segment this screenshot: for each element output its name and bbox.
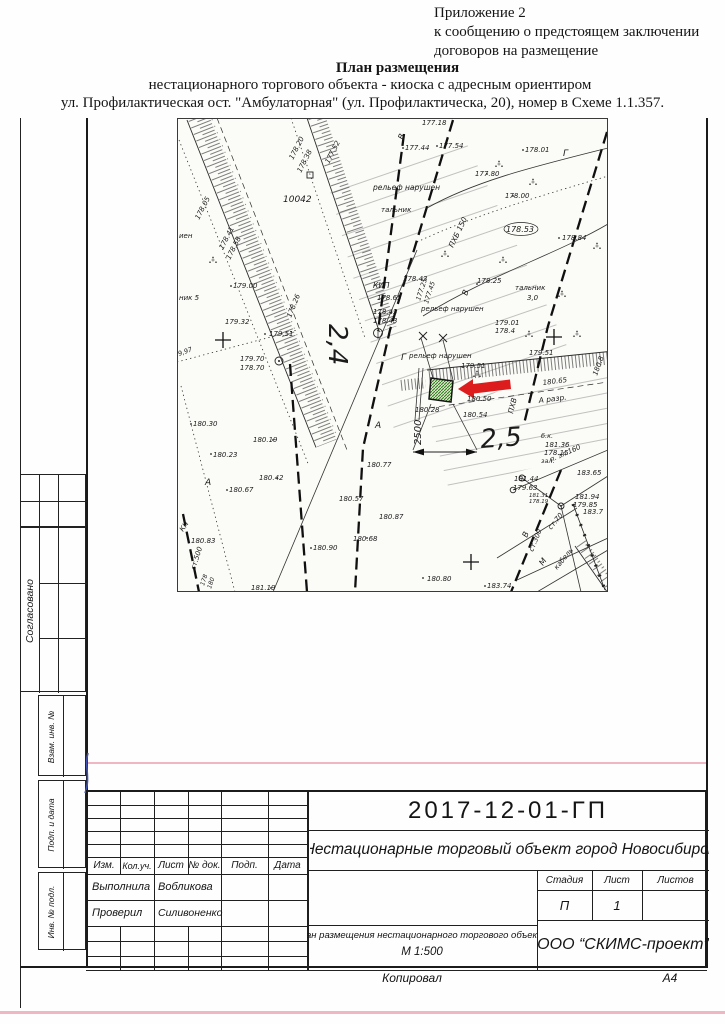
svg-text:180.90: 180.90 [313, 544, 338, 552]
svg-text:иен: иен [179, 232, 193, 240]
svg-text:178.65: 178.65 [377, 294, 402, 302]
svg-text:178.84: 178.84 [562, 234, 587, 242]
svg-text:2,4: 2,4 [322, 324, 352, 365]
svg-text:183.74: 183.74 [487, 582, 512, 590]
svg-text:178.43: 178.43 [373, 308, 398, 316]
svg-text:178.70: 178.70 [240, 364, 265, 372]
svg-text:180.23: 180.23 [213, 451, 238, 459]
svg-text:179.63: 179.63 [513, 484, 538, 492]
stamp-name-1: Вобликова [154, 874, 225, 900]
svg-text:180.67: 180.67 [229, 486, 254, 494]
svg-text:2,5: 2,5 [479, 422, 522, 455]
svg-text:180.83: 180.83 [191, 537, 216, 545]
svg-text:10042: 10042 [283, 195, 312, 205]
svg-text:177.18: 177.18 [422, 119, 447, 127]
svg-text:179.51: 179.51 [269, 330, 294, 338]
svg-text:ст.70: ст.70 [546, 511, 565, 531]
stamp-col-koluch: Кол.уч. [120, 857, 154, 874]
svg-text:181.44: 181.44 [514, 475, 539, 483]
svg-text:178.19: 178.19 [529, 499, 549, 505]
site-plan-drawing: 178.05178.41178.58178.20178.38177.521004… [177, 118, 608, 592]
svg-text:178.26: 178.26 [285, 293, 302, 319]
svg-text:177.80: 177.80 [475, 170, 500, 178]
svg-text:3,0: 3,0 [527, 294, 539, 302]
svg-text:179.32: 179.32 [225, 318, 250, 326]
stamp-col-list: Лист [154, 857, 188, 874]
stamp-doc-number: 2017-12-01-ГП [307, 792, 709, 830]
stamp-col-data: Дата [268, 857, 307, 874]
stamp-name-2: Силивоненко [154, 900, 225, 926]
svg-text:2500: 2500 [413, 420, 424, 445]
svg-text:178.15: 178.15 [544, 449, 569, 457]
svg-text:180.19: 180.19 [253, 436, 278, 444]
svg-text:180.50: 180.50 [467, 395, 492, 403]
svg-text:183.65: 183.65 [577, 469, 602, 477]
stamp-sheets-value [642, 890, 709, 920]
stamp-col-podp: Подп. [221, 857, 268, 874]
svg-text:180.30: 180.30 [193, 420, 218, 428]
svg-text:рельеф нарушен: рельеф нарушен [420, 305, 484, 313]
side-block-agreed: Согласовано [20, 527, 86, 692]
stamp-col-izm: Изм. [88, 857, 120, 874]
stamp-object-line: Нестационарные торговый объект город Нов… [310, 830, 709, 870]
stamp-role-1: Выполнила [88, 874, 158, 900]
scan-artifact-line-top [88, 762, 706, 764]
copied-by-label: Копировал [337, 971, 487, 985]
stamp-col-ndok: № док. [188, 857, 221, 874]
side-label-podp: Подп. и дата [46, 798, 56, 851]
side-label-agreed: Согласовано [24, 578, 36, 642]
svg-text:кабель: кабель [552, 546, 575, 571]
svg-text:178.05: 178.05 [194, 195, 212, 221]
svg-text:178.43: 178.43 [373, 317, 398, 325]
svg-text:А: А [204, 478, 211, 488]
stamp-stage-label: Стадия [537, 870, 592, 890]
svg-text:181.36: 181.36 [545, 441, 570, 449]
svg-text:рельеф нарушен: рельеф нарушен [408, 352, 472, 360]
page-subtitle-2: ул. Профилактическая ост. "Амбулаторная"… [5, 94, 720, 113]
svg-text:181.19: 181.19 [251, 584, 276, 592]
stamp-sheet-value: 1 [592, 890, 642, 920]
stamp-plan-title: План размещения нестационарного торговог… [307, 928, 537, 942]
svg-text:179.51: 179.51 [529, 349, 554, 357]
svg-text:В: В [521, 530, 531, 538]
svg-text:180.77: 180.77 [367, 461, 392, 469]
svg-text:КИП: КИП [373, 281, 390, 290]
header-notice-line-1: к сообщению о предстоящем заключении [434, 23, 699, 42]
svg-text:Г: Г [563, 149, 569, 159]
scanned-plan-document: { "header": { "line1": "Приложение 2", "… [0, 0, 725, 1024]
svg-text:178.4: 178.4 [495, 327, 515, 335]
svg-text:180.68: 180.68 [353, 535, 378, 543]
svg-text:180.57: 180.57 [339, 495, 364, 503]
svg-text:тальник: тальник [515, 284, 546, 292]
svg-text:А: А [374, 421, 381, 431]
svg-text:зал.: зал. [541, 457, 555, 465]
svg-text:178.01: 178.01 [525, 146, 550, 154]
svg-text:177.44: 177.44 [405, 144, 430, 152]
svg-text:178.53: 178.53 [506, 225, 534, 234]
svg-text:180.42: 180.42 [259, 474, 284, 482]
svg-text:179.01: 179.01 [495, 319, 520, 327]
svg-text:рельеф нарушен: рельеф нарушен [372, 183, 440, 192]
side-block-inv: Инв. № подл. [38, 872, 86, 950]
svg-text:КН: КН [178, 520, 191, 534]
stamp-company: ООО “СКИМС-проект” [537, 920, 709, 970]
side-label-vzam: Взам. инв. № [46, 710, 56, 763]
svg-text:179.00: 179.00 [233, 282, 258, 290]
stamp-role-2: Проверил [88, 900, 158, 926]
stamp-sheet-label: Лист [592, 870, 642, 890]
title-block: Изм. Кол.уч. Лист № док. Подп. Дата Выпо… [86, 790, 707, 968]
format-label: А4 [650, 971, 690, 985]
svg-text:179.70: 179.70 [240, 355, 265, 363]
svg-text:9,97: 9,97 [177, 345, 194, 358]
svg-text:В: В [396, 132, 406, 140]
svg-text:ст.300: ст.300 [527, 527, 543, 552]
side-label-inv: Инв. № подл. [46, 886, 56, 939]
page-subtitle-1: нестационарного торгового объекта - киос… [40, 76, 700, 95]
svg-text:М: М [537, 556, 548, 567]
slope-band-left [187, 118, 338, 448]
scan-artifact-line-bottom [0, 1011, 725, 1014]
stamp-scale: М 1:500 [307, 944, 537, 960]
svg-text:179.51: 179.51 [461, 362, 486, 370]
header-appendix-line: Приложение 2 [434, 4, 526, 23]
svg-text:б.к.: б.к. [541, 432, 553, 440]
svg-text:183.7: 183.7 [583, 508, 604, 516]
svg-text:180.28: 180.28 [415, 406, 440, 414]
side-grid-top [20, 474, 86, 527]
svg-text:177.54: 177.54 [439, 142, 464, 150]
svg-text:180.87: 180.87 [379, 513, 404, 521]
site-plan-map: 178.05178.41178.58178.20178.38177.521004… [177, 118, 608, 592]
svg-text:ник 5: ник 5 [179, 294, 200, 302]
kiosk-footprint [429, 378, 453, 402]
svg-text:180.80: 180.80 [427, 575, 452, 583]
svg-text:178.25: 178.25 [477, 277, 502, 285]
stamp-sheets-label: Листов [642, 870, 709, 890]
svg-text:180.54: 180.54 [463, 411, 488, 419]
stamp-stage-value: П [537, 890, 592, 920]
svg-text:181.94: 181.94 [575, 493, 600, 501]
svg-text:тальник: тальник [381, 206, 412, 214]
svg-text:178.00: 178.00 [505, 192, 530, 200]
